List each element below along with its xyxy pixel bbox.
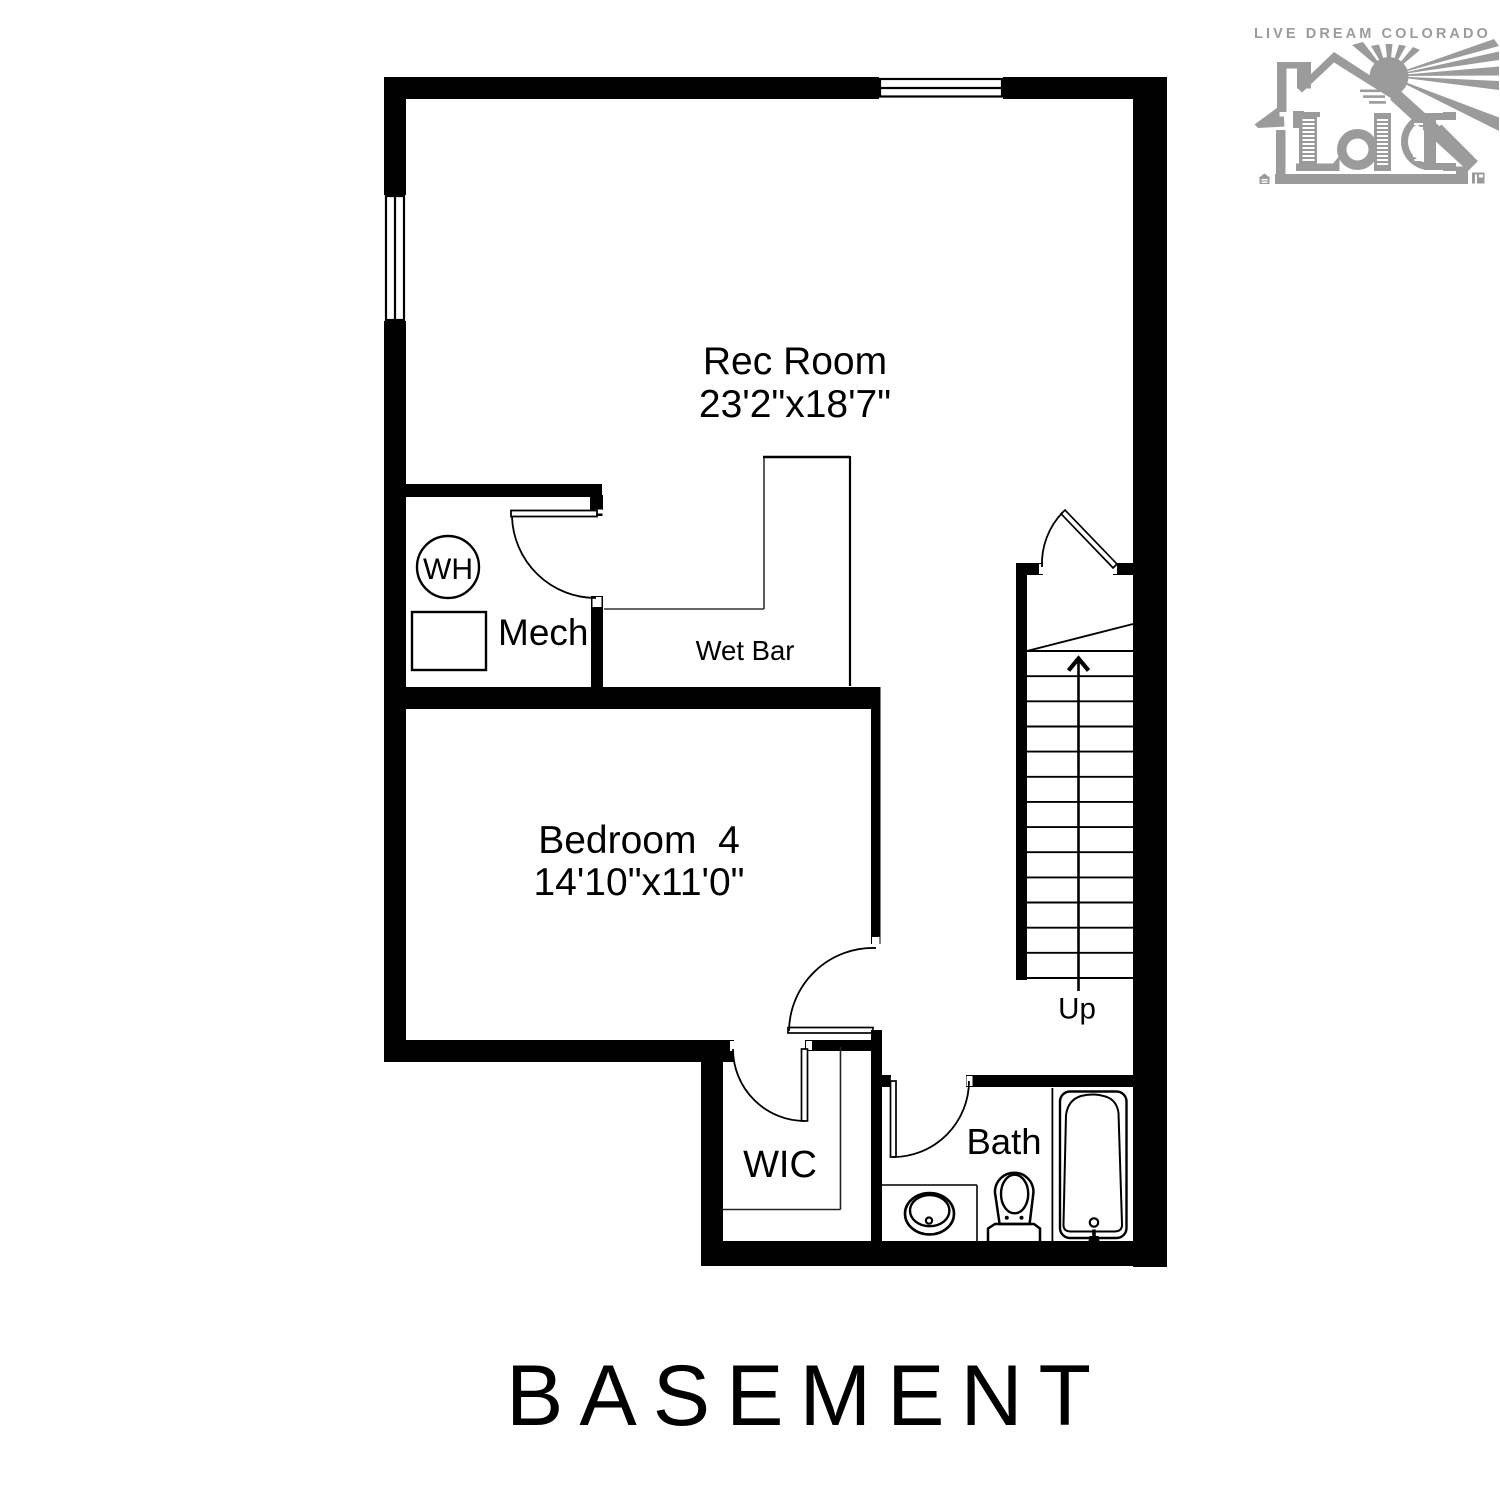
svg-text:14'10"x11'0": 14'10"x11'0" — [533, 861, 744, 904]
svg-text:BASEMENT: BASEMENT — [506, 1348, 1107, 1444]
svg-text:WH: WH — [423, 553, 473, 586]
svg-text:Up: Up — [1058, 992, 1096, 1025]
svg-text:Wet Bar: Wet Bar — [696, 635, 795, 666]
svg-text:Bath: Bath — [966, 1121, 1041, 1162]
svg-text:Mech: Mech — [498, 612, 588, 653]
svg-text:LIVE DREAM COLORADO: LIVE DREAM COLORADO — [1254, 26, 1491, 42]
svg-text:23'2"x18'7": 23'2"x18'7" — [699, 383, 891, 426]
svg-text:Bedroom 4: Bedroom 4 — [538, 819, 740, 862]
svg-text:Rec Room: Rec Room — [703, 340, 887, 383]
svg-text:WIC: WIC — [743, 1144, 817, 1186]
